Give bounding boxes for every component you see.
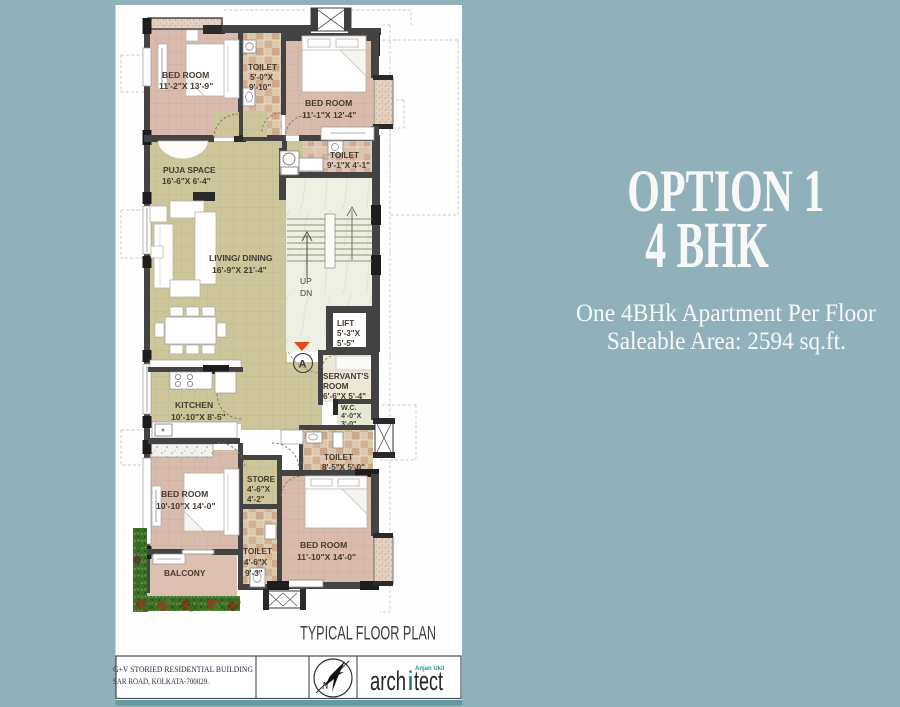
svg-text:11'-10"X 14'-0": 11'-10"X 14'-0" — [297, 552, 356, 562]
svg-text:DN: DN — [300, 288, 312, 298]
svg-text:3'-0": 3'-0" — [341, 419, 357, 428]
svg-text:5'-5": 5'-5" — [337, 339, 355, 348]
svg-text:BALCONY: BALCONY — [164, 568, 206, 578]
svg-text:4'-6"X: 4'-6"X — [247, 485, 271, 494]
svg-text:4'-2": 4'-2" — [247, 495, 265, 504]
svg-text:9'-1"X 4'-1": 9'-1"X 4'-1" — [327, 161, 370, 170]
svg-text:11'-1"X 12'-4": 11'-1"X 12'-4" — [302, 110, 356, 120]
svg-text:11'-2"X 13'-9": 11'-2"X 13'-9" — [159, 81, 213, 91]
svg-text:UP: UP — [300, 276, 312, 286]
svg-text:BED ROOM: BED ROOM — [162, 70, 209, 80]
svg-text:5'-3"X: 5'-3"X — [337, 329, 361, 338]
svg-text:BED ROOM: BED ROOM — [305, 98, 352, 108]
svg-text:8'-5"X 5'-0": 8'-5"X 5'-0" — [322, 463, 365, 472]
svg-text:SAR ROAD, KOLKATA-700029.: SAR ROAD, KOLKATA-700029. — [113, 677, 209, 686]
svg-text:TOILET: TOILET — [324, 453, 353, 462]
svg-text:TOILET: TOILET — [330, 151, 359, 160]
svg-text:A: A — [299, 359, 307, 371]
svg-text:6'-6"X 5'-4": 6'-6"X 5'-4" — [323, 392, 366, 401]
svg-text:ROOM: ROOM — [323, 382, 349, 391]
svg-text:N: N — [321, 681, 330, 692]
svg-text:LIFT: LIFT — [337, 319, 354, 328]
svg-text:G+V STORIED RESIDENTIAL BUILDI: G+V STORIED RESIDENTIAL BUILDING — [113, 665, 253, 674]
svg-text:9'-10": 9'-10" — [249, 83, 271, 92]
svg-text:PUJA SPACE: PUJA SPACE — [163, 165, 216, 175]
svg-text:BED ROOM: BED ROOM — [300, 540, 347, 550]
svg-text:BED ROOM: BED ROOM — [161, 489, 208, 499]
svg-text:16'-9"X 21'-4": 16'-9"X 21'-4" — [212, 265, 267, 275]
svg-text:TYPICAL FLOOR PLAN: TYPICAL FLOOR PLAN — [300, 624, 436, 645]
svg-text:10'-10"X 8'-5": 10'-10"X 8'-5" — [171, 412, 226, 422]
svg-text:KITCHEN: KITCHEN — [175, 400, 213, 410]
svg-text:SERVANT'S: SERVANT'S — [323, 372, 369, 381]
svg-text:9'-3": 9'-3" — [245, 569, 263, 578]
svg-text:5'-0"X: 5'-0"X — [250, 73, 274, 82]
svg-text:LIVING/ DINING: LIVING/ DINING — [209, 253, 273, 263]
svg-text:i: i — [408, 666, 414, 696]
svg-text:TOILET: TOILET — [248, 63, 277, 72]
svg-text:STORE: STORE — [247, 475, 276, 484]
svg-text:TOILET: TOILET — [243, 547, 272, 556]
svg-text:10'-10"X 14'-0": 10'-10"X 14'-0" — [156, 501, 216, 511]
svg-text:4'-6"X: 4'-6"X — [244, 558, 268, 567]
svg-text:Anjan Ukil: Anjan Ukil — [415, 666, 445, 672]
svg-text:16'-6"X 6'-4": 16'-6"X 6'-4" — [162, 176, 211, 186]
svg-text:arch: arch — [370, 666, 406, 696]
